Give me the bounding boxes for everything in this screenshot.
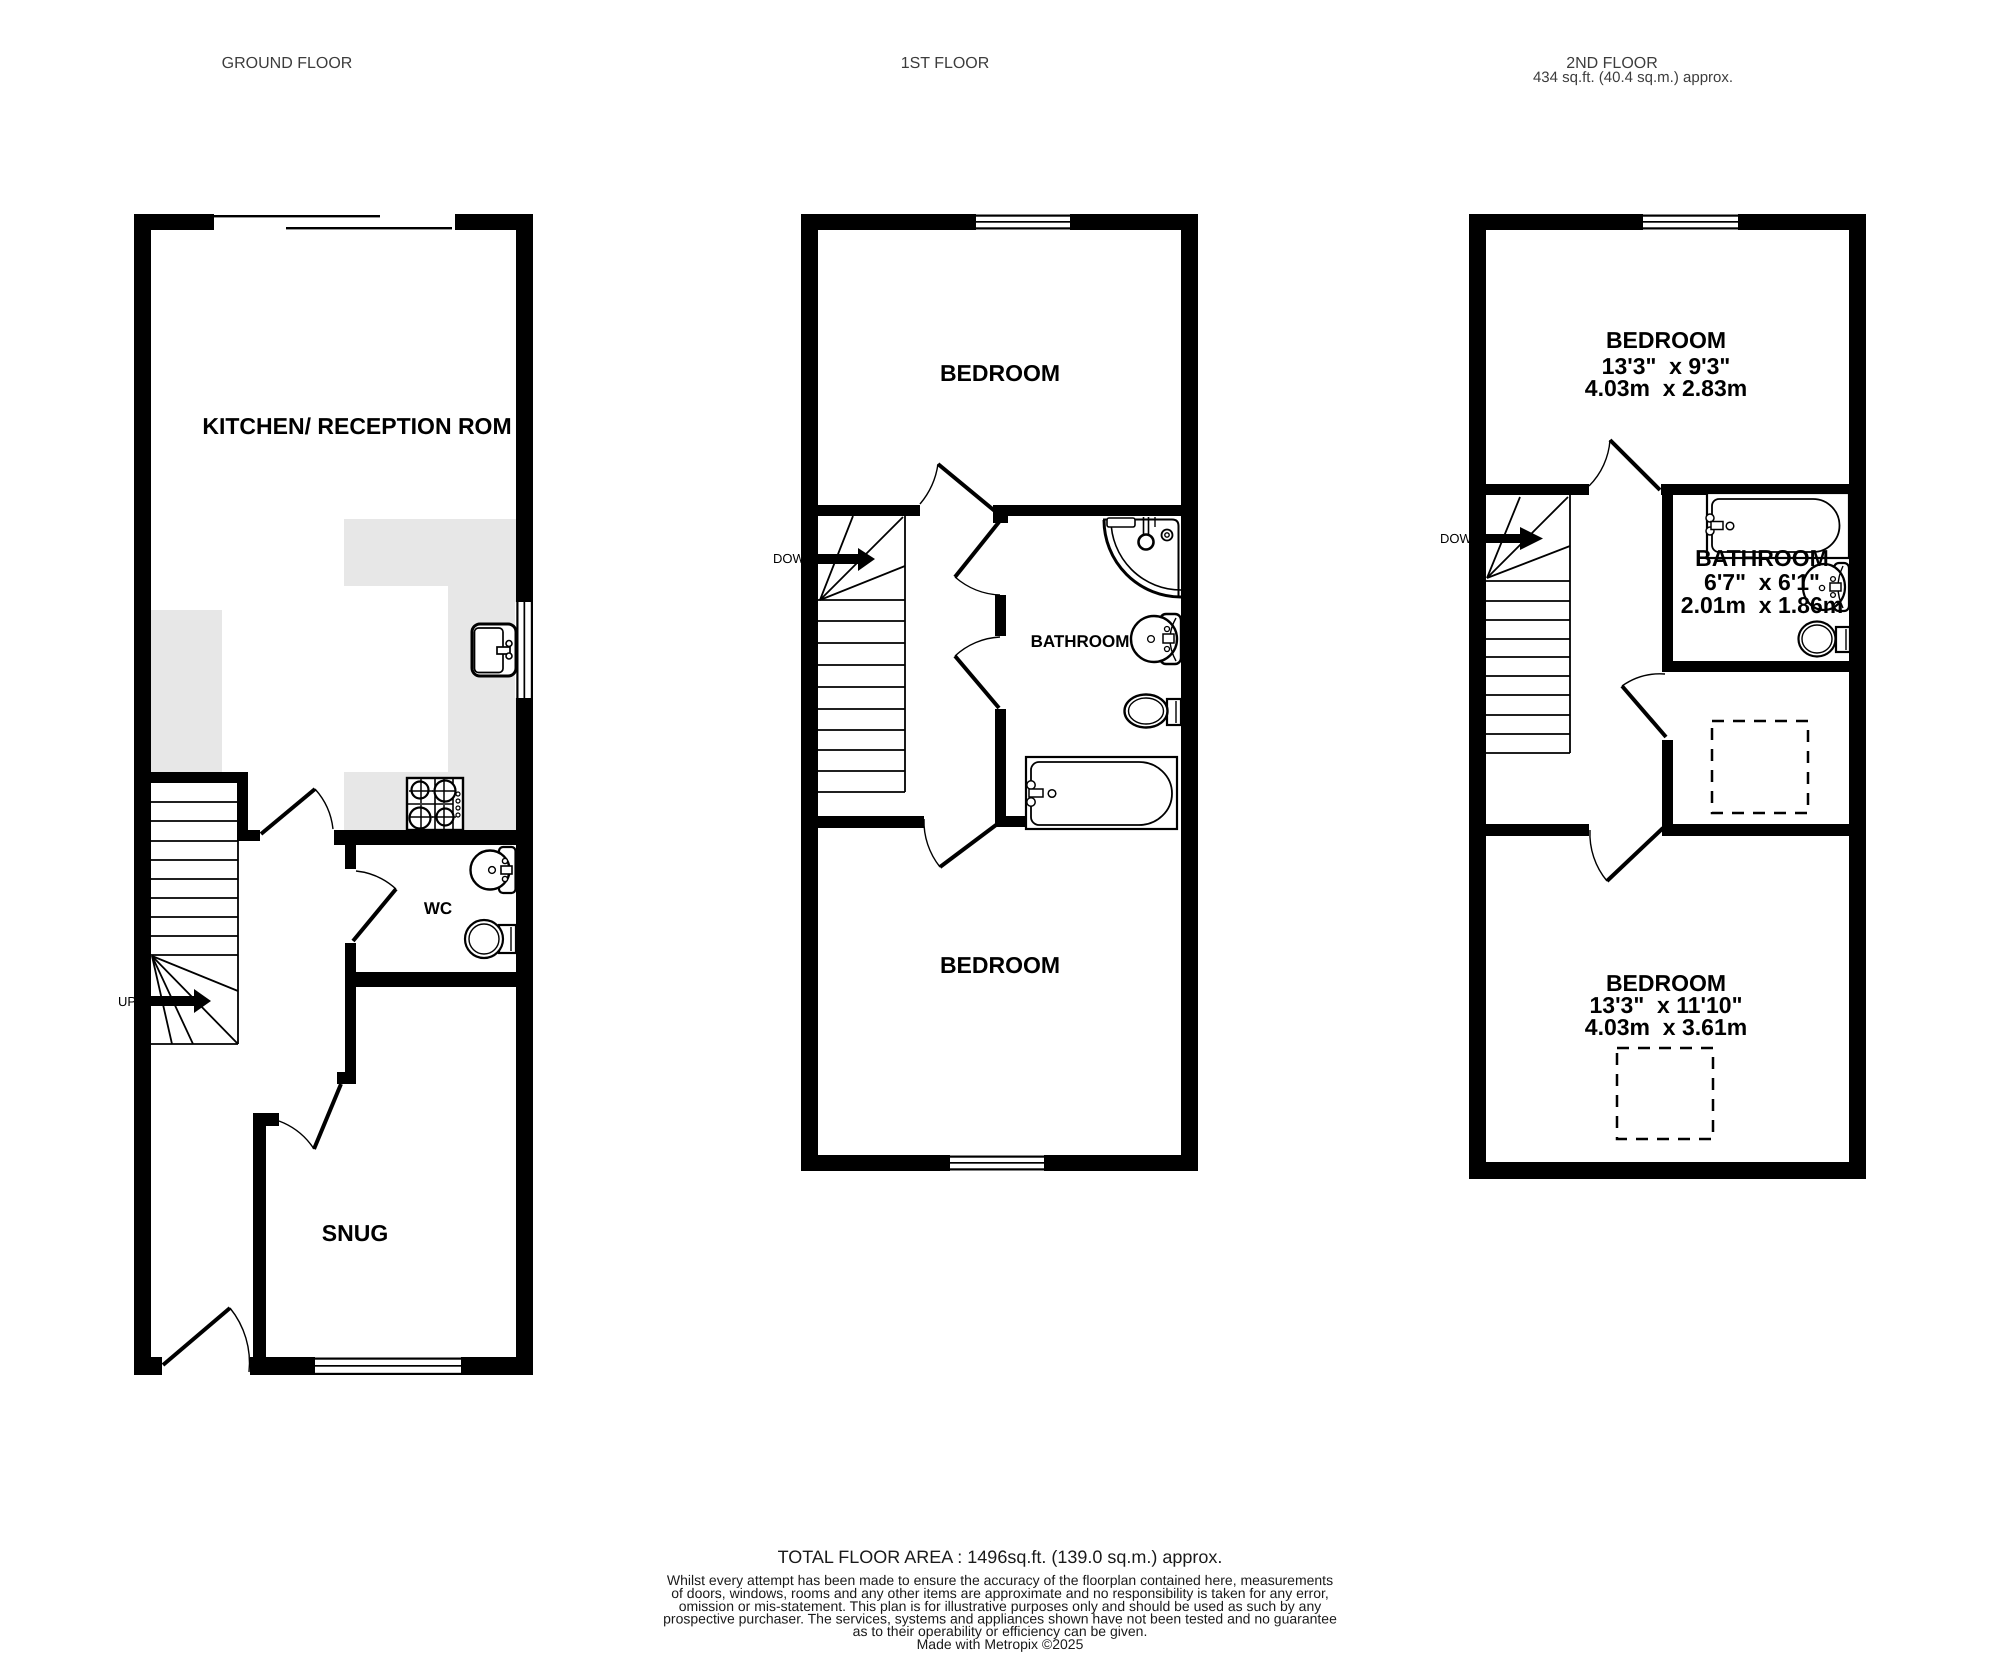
svg-text:4.03m x 2.83m: 4.03m x 2.83m: [1585, 375, 1747, 401]
svg-text:BEDROOM: BEDROOM: [940, 952, 1060, 978]
svg-text:4.03m x 3.61m: 4.03m x 3.61m: [1585, 1014, 1747, 1040]
svg-text:BATHROOM: BATHROOM: [1695, 545, 1829, 571]
svg-text:BEDROOM: BEDROOM: [940, 360, 1060, 386]
svg-text:GROUND FLOOR: GROUND FLOOR: [222, 55, 353, 72]
svg-text:Made with Metropix ©2025: Made with Metropix ©2025: [917, 1636, 1084, 1652]
svg-text:434 sq.ft. (40.4 sq.m.) approx: 434 sq.ft. (40.4 sq.m.) approx.: [1533, 69, 1733, 86]
svg-text:BATHROOM: BATHROOM: [1031, 632, 1130, 651]
svg-text:UP: UP: [118, 994, 136, 1009]
svg-text:1ST FLOOR: 1ST FLOOR: [901, 55, 990, 72]
svg-text:SNUG: SNUG: [322, 1220, 388, 1246]
svg-text:BEDROOM: BEDROOM: [1606, 327, 1726, 353]
svg-text:TOTAL FLOOR AREA : 1496sq.ft.: TOTAL FLOOR AREA : 1496sq.ft. (139.0 sq.…: [778, 1547, 1223, 1567]
svg-text:2.01m x 1.86m: 2.01m x 1.86m: [1681, 592, 1843, 618]
svg-text:KITCHEN/ RECEPTION ROM: KITCHEN/ RECEPTION ROM: [202, 413, 511, 439]
svg-text:WC: WC: [424, 899, 452, 918]
